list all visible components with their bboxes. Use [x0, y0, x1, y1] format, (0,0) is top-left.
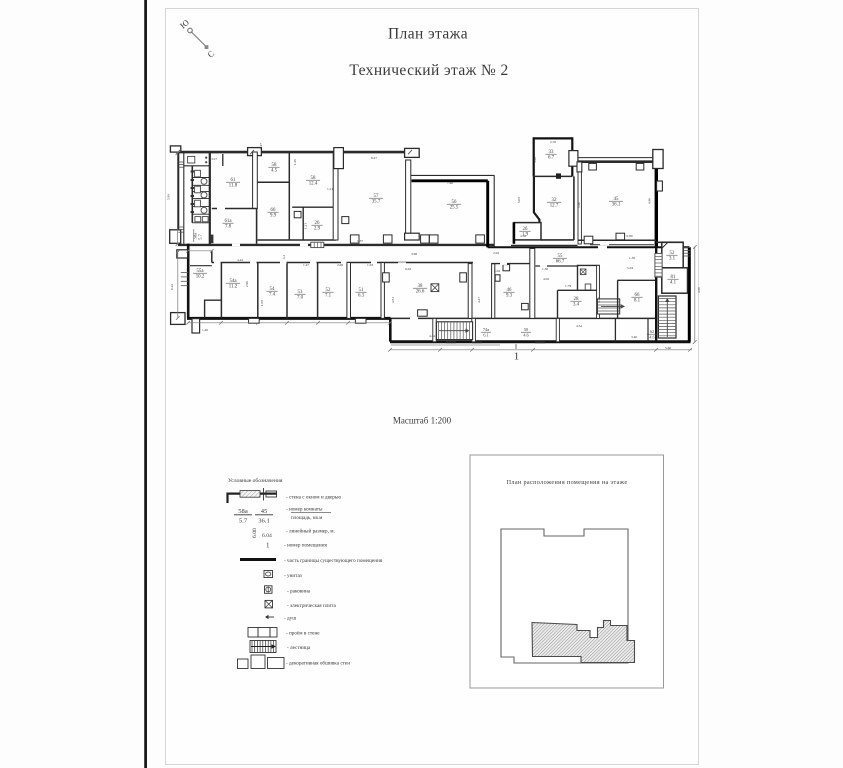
svg-text:площадь, кв.м: площадь, кв.м	[291, 515, 323, 521]
svg-text:- линейный размер, м.: - линейный размер, м.	[286, 528, 335, 535]
svg-text:План этажа: План этажа	[388, 26, 468, 43]
svg-text:4.58: 4.58	[520, 234, 526, 238]
svg-text:3.68: 3.68	[411, 252, 417, 256]
svg-text:7.40: 7.40	[447, 181, 453, 185]
svg-text:5.98: 5.98	[167, 194, 171, 200]
svg-text:45: 45	[261, 508, 268, 515]
svg-text:7.0: 7.0	[297, 296, 304, 301]
svg-text:4.90: 4.90	[648, 198, 652, 204]
svg-text:4.81: 4.81	[391, 297, 395, 303]
svg-text:11.8: 11.8	[229, 184, 238, 189]
svg-text:4.34: 4.34	[576, 324, 582, 328]
svg-text:5.7: 5.7	[198, 233, 203, 239]
svg-text:10.2: 10.2	[196, 275, 205, 280]
svg-text:2.76: 2.76	[550, 140, 556, 144]
svg-text:4.6: 4.6	[523, 333, 529, 338]
svg-text:50: 50	[524, 327, 528, 332]
svg-text:9.62: 9.62	[405, 267, 411, 271]
svg-text:- электрическая плита: - электрическая плита	[287, 603, 336, 609]
svg-text:1.21: 1.21	[327, 187, 333, 191]
svg-text:11.2: 11.2	[229, 285, 238, 290]
svg-text:4.5: 4.5	[271, 169, 278, 174]
svg-text:3.3: 3.3	[282, 255, 286, 260]
svg-text:Условные обозначения: Условные обозначения	[228, 477, 283, 484]
svg-text:4.34: 4.34	[429, 334, 435, 338]
svg-text:5.04: 5.04	[494, 269, 500, 273]
svg-text:4.27: 4.27	[477, 297, 481, 303]
svg-text:План расположения помещения на: План расположения помещения на этаже	[507, 479, 628, 486]
svg-text:2.96: 2.96	[245, 281, 249, 287]
svg-text:4.1: 4.1	[670, 281, 677, 286]
svg-text:6.1: 6.1	[483, 333, 488, 338]
svg-text:4.80: 4.80	[697, 287, 701, 293]
svg-text:62: 62	[650, 329, 654, 334]
svg-text:5.90: 5.90	[577, 202, 581, 208]
svg-text:26.6: 26.6	[416, 290, 425, 295]
svg-text:1.93: 1.93	[367, 263, 373, 267]
svg-text:6.3: 6.3	[358, 294, 365, 299]
svg-text:6.00: 6.00	[252, 528, 258, 538]
svg-text:1: 1	[514, 351, 520, 363]
svg-text:1.68: 1.68	[260, 300, 264, 306]
svg-text:5.42: 5.42	[533, 157, 537, 163]
svg-text:12.7: 12.7	[550, 204, 559, 209]
svg-text:6.43: 6.43	[170, 284, 174, 290]
svg-text:36.1: 36.1	[612, 203, 621, 208]
svg-text:8.1: 8.1	[634, 299, 641, 304]
svg-text:12.4: 12.4	[309, 182, 318, 187]
svg-text:2.17: 2.17	[259, 143, 263, 149]
svg-text:- стена с окном и дверью: - стена с окном и дверью	[286, 495, 341, 501]
svg-text:7.8: 7.8	[225, 225, 232, 230]
svg-text:1.40: 1.40	[202, 328, 208, 332]
svg-text:7.4: 7.4	[269, 293, 276, 298]
svg-text:3.27: 3.27	[211, 157, 217, 161]
svg-text:4.44: 4.44	[237, 258, 243, 262]
svg-text:3.1: 3.1	[669, 257, 676, 262]
svg-text:- лестница: - лестница	[287, 645, 311, 651]
svg-text:4.02: 4.02	[543, 277, 549, 281]
svg-text:- часть границы существующего: - часть границы существующего помещения	[284, 558, 383, 564]
svg-text:1: 1	[266, 542, 270, 550]
svg-text:1.30: 1.30	[629, 256, 635, 260]
svg-text:1.26: 1.26	[293, 159, 297, 165]
svg-text:- душ: - душ	[284, 616, 296, 622]
svg-text:1.79: 1.79	[565, 284, 571, 288]
svg-text:- проём в стене: - проём в стене	[286, 631, 320, 637]
svg-text:66.7: 66.7	[556, 260, 565, 265]
svg-text:74а: 74а	[483, 327, 489, 332]
svg-text:5.60: 5.60	[665, 346, 671, 350]
svg-text:0.80: 0.80	[626, 234, 632, 238]
svg-text:5.08: 5.08	[517, 197, 521, 203]
svg-text:7.1: 7.1	[325, 294, 332, 299]
svg-text:- номер комнаты: - номер комнаты	[286, 507, 323, 513]
svg-text:58а: 58а	[238, 508, 248, 515]
svg-text:8.47: 8.47	[371, 156, 377, 160]
svg-text:4.6: 4.6	[649, 335, 655, 340]
svg-text:9.9: 9.9	[270, 214, 277, 219]
svg-text:36.1: 36.1	[258, 518, 270, 525]
svg-text:- раковина: - раковина	[287, 589, 311, 595]
svg-text:25.5: 25.5	[450, 206, 459, 211]
svg-text:2.06: 2.06	[337, 263, 343, 267]
svg-text:1.37: 1.37	[357, 239, 363, 243]
svg-text:5.7: 5.7	[239, 518, 248, 525]
svg-text:Технический этаж № 2: Технический этаж № 2	[349, 62, 508, 79]
svg-text:- декоративная обшивка стен: - декоративная обшивка стен	[286, 660, 350, 667]
svg-text:Масштаб 1:200: Масштаб 1:200	[393, 416, 452, 426]
svg-text:- унитаз: - унитаз	[284, 573, 302, 579]
svg-text:- номер помещения: - номер помещения	[284, 543, 327, 549]
svg-text:6.7: 6.7	[548, 156, 555, 161]
svg-text:3.40: 3.40	[631, 335, 637, 339]
svg-text:2.92: 2.92	[493, 251, 499, 255]
svg-text:9.3: 9.3	[506, 294, 513, 299]
svg-text:2.9: 2.9	[314, 227, 321, 232]
svg-text:5.04: 5.04	[627, 266, 633, 270]
svg-text:4.41: 4.41	[597, 297, 601, 303]
svg-text:1.21: 1.21	[304, 223, 308, 229]
svg-text:1.30: 1.30	[542, 267, 548, 271]
svg-text:6.04: 6.04	[262, 533, 272, 539]
svg-text:1.47: 1.47	[303, 263, 309, 267]
svg-text:35.7: 35.7	[372, 200, 381, 205]
svg-text:3.4: 3.4	[573, 303, 580, 308]
